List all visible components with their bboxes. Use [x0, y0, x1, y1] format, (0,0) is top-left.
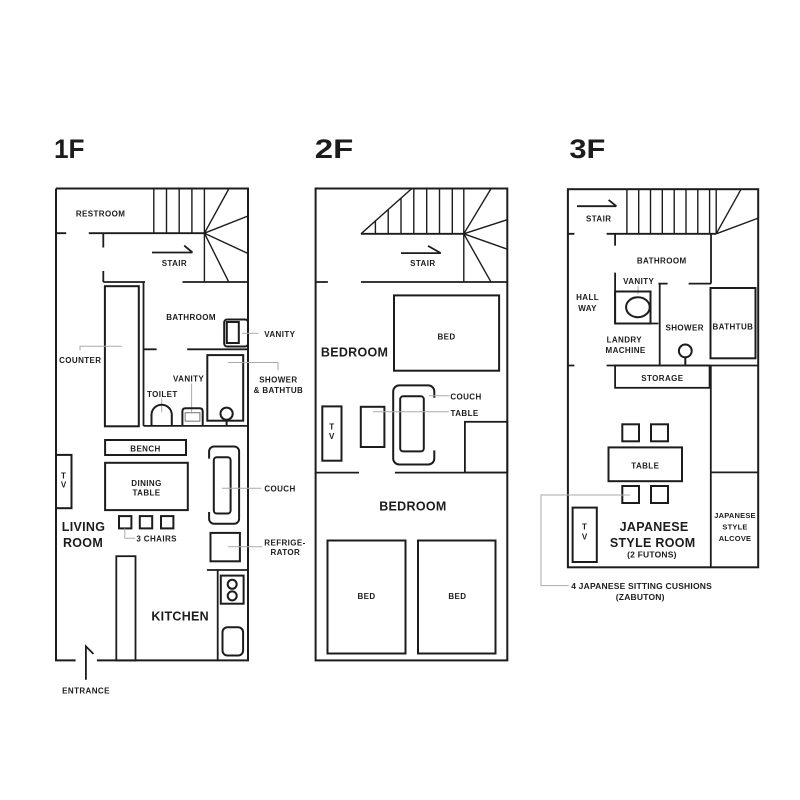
svg-text:1F: 1F — [54, 134, 85, 164]
svg-text:REFRIGE-: REFRIGE- — [264, 538, 305, 547]
svg-text:TABLE: TABLE — [451, 409, 479, 418]
svg-text:SHOWER: SHOWER — [665, 324, 703, 333]
svg-text:BEDROOM: BEDROOM — [321, 346, 388, 360]
svg-text:KITCHEN: KITCHEN — [151, 610, 209, 624]
svg-text:MACHINE: MACHINE — [606, 346, 646, 355]
svg-text:JAPANESE: JAPANESE — [620, 520, 689, 534]
svg-text:BED: BED — [448, 592, 466, 601]
svg-text:BEDROOM: BEDROOM — [379, 500, 446, 514]
svg-text:BATHTUB: BATHTUB — [712, 323, 753, 332]
svg-text:ALCOVE: ALCOVE — [719, 534, 751, 543]
svg-text:T: T — [61, 471, 66, 480]
svg-text:LANDRY: LANDRY — [607, 335, 643, 344]
svg-text:(2 FUTONS): (2 FUTONS) — [627, 550, 677, 560]
svg-text:V: V — [582, 533, 588, 542]
svg-text:TOILET: TOILET — [147, 390, 178, 399]
svg-text:BATHROOM: BATHROOM — [166, 313, 216, 322]
svg-text:TABLE: TABLE — [132, 488, 160, 497]
svg-text:STAIR: STAIR — [410, 259, 435, 268]
svg-text:STAIR: STAIR — [162, 259, 187, 268]
svg-text:ROOM: ROOM — [63, 536, 103, 550]
svg-text:T: T — [329, 422, 334, 431]
svg-text:ENTRANCE: ENTRANCE — [62, 687, 110, 696]
svg-text:JAPANESE: JAPANESE — [714, 511, 755, 520]
svg-text:STAIR: STAIR — [586, 214, 611, 223]
svg-text:3 CHAIRS: 3 CHAIRS — [136, 534, 177, 543]
svg-text:BED: BED — [357, 592, 375, 601]
svg-text:4 JAPANESE SITTING CUSHIONS: 4 JAPANESE SITTING CUSHIONS — [571, 581, 712, 591]
svg-text:COUCH: COUCH — [264, 485, 295, 494]
svg-text:VANITY: VANITY — [264, 330, 295, 339]
svg-text:(ZABUTON): (ZABUTON) — [616, 592, 665, 602]
svg-text:LIVING: LIVING — [62, 520, 105, 534]
svg-text:3F: 3F — [569, 134, 605, 164]
svg-text:BED: BED — [437, 332, 455, 341]
svg-text:COUNTER: COUNTER — [59, 356, 101, 365]
svg-text:& BATHTUB: & BATHTUB — [254, 386, 304, 395]
svg-text:STYLE ROOM: STYLE ROOM — [610, 536, 696, 550]
svg-text:STYLE: STYLE — [722, 523, 747, 532]
svg-text:HALL: HALL — [576, 293, 599, 302]
svg-text:STORAGE: STORAGE — [641, 374, 683, 383]
svg-text:TABLE: TABLE — [631, 462, 659, 471]
svg-text:RESTROOM: RESTROOM — [76, 209, 125, 218]
svg-text:SHOWER: SHOWER — [259, 375, 297, 384]
svg-text:WAY: WAY — [578, 304, 597, 313]
svg-text:VANITY: VANITY — [623, 277, 654, 286]
svg-text:BATHROOM: BATHROOM — [637, 256, 687, 265]
svg-text:2F: 2F — [315, 134, 354, 164]
svg-text:RATOR: RATOR — [270, 548, 300, 557]
svg-text:DINING: DINING — [131, 479, 161, 488]
svg-text:VANITY: VANITY — [173, 374, 204, 383]
svg-text:BENCH: BENCH — [130, 444, 160, 453]
svg-text:V: V — [329, 432, 335, 441]
svg-text:COUCH: COUCH — [450, 392, 481, 401]
svg-text:V: V — [61, 481, 67, 490]
svg-text:T: T — [582, 522, 587, 531]
